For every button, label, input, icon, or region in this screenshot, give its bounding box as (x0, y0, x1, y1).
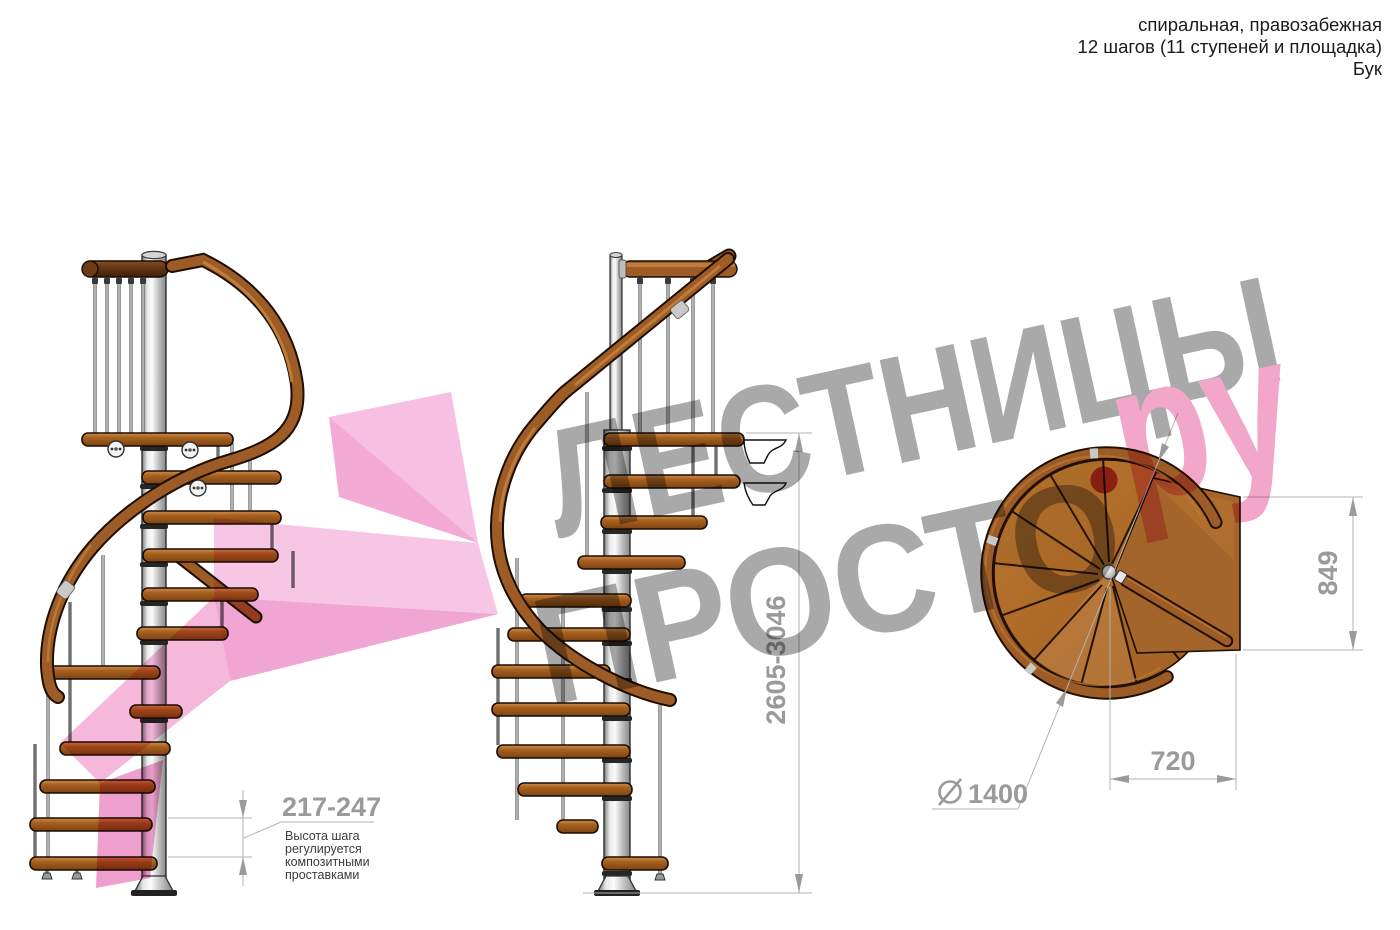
title-line-material: Бук (1078, 58, 1382, 80)
note-line: проставками (285, 869, 370, 882)
rail-end-cap (82, 261, 98, 277)
title-block: спиральная, правозабежная 12 шагов (11 с… (1078, 14, 1382, 80)
title-line-steps: 12 шагов (11 ступеней и площадка) (1078, 36, 1382, 58)
watermark-dot (1091, 467, 1118, 494)
step-height-value: 217-247 (282, 792, 381, 822)
landing-depth-value: 849 (1313, 550, 1343, 595)
landing-width-value: 720 (1150, 746, 1195, 776)
pole-top-cap (142, 251, 166, 258)
watermark: ЛЕСТНИЦЫ ПРОСТО ру (60, 244, 1313, 888)
baluster-foot (655, 874, 665, 880)
baluster-foot (72, 873, 82, 879)
staircase-technical-drawing: 217-247 2605-3046 849 720 (0, 0, 1400, 930)
diameter-value: 1400 (968, 779, 1028, 809)
step-height-note: Высота шага регулируется композитными пр… (285, 830, 370, 882)
title-line-type: спиральная, правозабежная (1078, 14, 1382, 36)
drawing-page: 217-247 2605-3046 849 720 (0, 0, 1400, 930)
watermark-arrow (60, 392, 498, 888)
baluster-foot (42, 873, 52, 879)
ring-joint-sleeve (1028, 666, 1034, 671)
platform-step (82, 433, 233, 446)
diameter-symbol (939, 779, 961, 805)
railing-top-rail (82, 261, 168, 277)
